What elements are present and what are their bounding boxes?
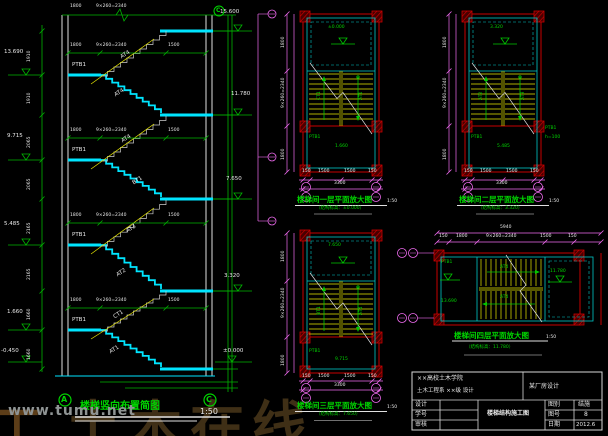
dim-text: 9×260=2340 <box>96 44 126 49</box>
dim-text: 2065 <box>28 137 33 148</box>
dim-text: 2165 <box>28 223 33 234</box>
dim-text: 1500 <box>168 44 179 49</box>
plan-subtitle: （结构标高：3.320） <box>478 207 522 212</box>
plan-floor-level: 11.780 <box>550 270 566 275</box>
titleblock-project: 某厂房设计 <box>529 384 559 390</box>
dim-text: 1500 <box>540 235 551 240</box>
dim-text: 1500 <box>318 170 329 175</box>
cad-drawing-canvas: 工 土木在线 www.tumu.net 13.690 9.715 5.485 1… <box>0 0 608 436</box>
level-label: 5.485 <box>4 222 20 228</box>
plan-floor-level: 7.650 <box>328 244 341 249</box>
dim-text: 1800 <box>444 149 449 160</box>
dim-text: 2065 <box>28 179 33 190</box>
dim-text: 9×260=2340 <box>96 214 126 219</box>
level-label: 9.715 <box>7 134 23 140</box>
level-label: 1.660 <box>7 310 23 316</box>
dim-text: 1660 <box>28 309 33 320</box>
dim-text: 150 <box>464 170 473 175</box>
level-label: 15.600 <box>220 10 239 16</box>
titleblock-school: ××高校土木学院 <box>417 376 463 382</box>
titleblock-dept: 土木工程系 ××级 设计 <box>417 389 474 395</box>
titleblock-row-label: 设计 <box>415 402 427 408</box>
dim-text: 9×260=2340 <box>96 129 126 134</box>
plan-landing-note: h=100 <box>545 136 560 141</box>
level-label: ±0.000 <box>223 349 243 355</box>
plan-landing-level: 13.690 <box>441 300 457 305</box>
titleblock-right-label: 日期 <box>548 422 560 428</box>
dim-text: 1500 <box>318 375 329 380</box>
plan-landing-label: PTB1 <box>309 350 320 355</box>
titleblock-right-value: 2012.6 <box>576 423 595 429</box>
titleblock-right-label: 图别 <box>548 402 560 408</box>
axis-bubble-c-top: C <box>216 8 220 14</box>
drawing-linework <box>0 0 608 436</box>
plan-scale: 1:50 <box>387 200 397 205</box>
plan-subtitle: （结构标高：±0.000） <box>316 207 364 212</box>
dim-text: 1500 <box>168 299 179 304</box>
titleblock-row-label: 学号 <box>415 412 427 418</box>
level-label: -0.450 <box>1 349 19 355</box>
dim-text: 3300 <box>496 182 507 187</box>
titleblock-drawing-name: 楼梯结构施工图 <box>487 411 529 417</box>
plan-title: 楼梯间四层平面放大图 <box>454 332 529 340</box>
dim-text: 150 <box>368 375 377 380</box>
landing-label: PTB1 <box>72 148 86 154</box>
plan-flight-label: AT2 <box>480 92 485 100</box>
dim-text: 150 <box>530 170 539 175</box>
dim-text: 9×260=2340 <box>444 78 449 108</box>
dim-text: 1800 <box>70 214 81 219</box>
dim-text: 3300 <box>334 384 345 389</box>
level-label: 3.320 <box>224 274 240 280</box>
level-label: 7.650 <box>226 177 242 183</box>
titleblock-row-label: 审核 <box>415 422 427 428</box>
plan-title: 楼梯间二层平面放大图 <box>459 196 534 204</box>
plan-scale: 1:50 <box>387 406 397 411</box>
dim-text: 3300 <box>334 182 345 187</box>
landing-label: PTB1 <box>72 318 86 324</box>
dim-text: 1660 <box>28 349 33 360</box>
plan-floor-level: 3.320 <box>490 26 503 31</box>
dim-text: 9×260=2340 <box>96 299 126 304</box>
plan-scale: 1:50 <box>546 336 556 341</box>
dim-text: 9×260=2340 <box>486 235 516 240</box>
plan-flight-label: AT3 <box>522 92 527 100</box>
plan-flight-label: AT4 <box>360 307 365 315</box>
plan-subtitle: （结构标高：11.780） <box>466 346 513 351</box>
dim-text: 9×260=2340 <box>282 78 287 108</box>
dim-text: 1800 <box>282 251 287 262</box>
dim-text: 1800 <box>70 5 81 10</box>
dim-text: 150 <box>439 235 448 240</box>
plan-scale: 1:50 <box>549 200 559 205</box>
plan-landing-level: 1.660 <box>335 145 348 150</box>
level-label: 13.690 <box>4 50 23 56</box>
dim-text: 1500 <box>480 170 491 175</box>
plan-title: 楼梯间三层平面放大图 <box>297 402 372 410</box>
dim-text: 1800 <box>70 299 81 304</box>
dim-text: 1800 <box>456 235 467 240</box>
plan-title: 楼梯间一层平面放大图 <box>297 196 372 204</box>
dim-text: 1500 <box>168 129 179 134</box>
plan-landing-level: 5.485 <box>497 145 510 150</box>
landing-label: PTB1 <box>72 63 86 69</box>
axis-bubble-c: C <box>206 396 212 404</box>
dim-text: 1500 <box>344 375 355 380</box>
dim-text: 150 <box>568 235 577 240</box>
plan-flight-label: AT4 <box>500 296 508 301</box>
dim-text: 1800 <box>282 355 287 366</box>
dim-text: 150 <box>302 170 311 175</box>
titleblock-right-label: 图号 <box>548 412 560 418</box>
dim-text: 5940 <box>500 226 511 231</box>
dim-text: 9×260=2340 <box>282 288 287 318</box>
dim-text: 1500 <box>168 214 179 219</box>
dim-text: 1800 <box>282 149 287 160</box>
plan-landing-label: PTB1 <box>545 127 556 132</box>
dim-text: 1800 <box>282 37 287 48</box>
dim-text: 150 <box>368 170 377 175</box>
dim-text: 1800 <box>444 37 449 48</box>
plan-flight-label: CT1 <box>318 91 323 100</box>
plan-landing-label: PTB1 <box>471 136 482 141</box>
dim-text: 1500 <box>506 170 517 175</box>
dim-text: 150 <box>302 375 311 380</box>
plan-flight-label: AT4 <box>500 266 508 271</box>
plan-landing-level: 9.715 <box>335 358 348 363</box>
watermark-url: www.tumu.net <box>8 403 136 419</box>
plan-flight-label: AT1 <box>360 92 365 100</box>
plan-landing-label: PTB1 <box>309 136 320 141</box>
plan-subtitle: （结构标高：7.650） <box>316 413 360 418</box>
dim-text: 9×260=2340 <box>96 5 126 10</box>
level-label: 11.780 <box>231 92 250 98</box>
dim-text: 1800 <box>70 44 81 49</box>
titleblock-right-value: 结施 <box>578 402 590 408</box>
titleblock-right-value: 8 <box>584 412 588 418</box>
dim-text: 1910 <box>28 93 33 104</box>
plan-landing-label: PTB1 <box>441 261 452 266</box>
plan-floor-level: ±0.000 <box>328 26 345 31</box>
plan-flight-label: BT1 <box>318 306 323 315</box>
dim-text: 2165 <box>28 269 33 280</box>
landing-label: PTB1 <box>72 233 86 239</box>
dim-text: 1800 <box>70 129 81 134</box>
dim-text: 1500 <box>344 170 355 175</box>
section-scale: 1:50 <box>200 408 218 416</box>
dim-text: 1910 <box>28 51 33 62</box>
